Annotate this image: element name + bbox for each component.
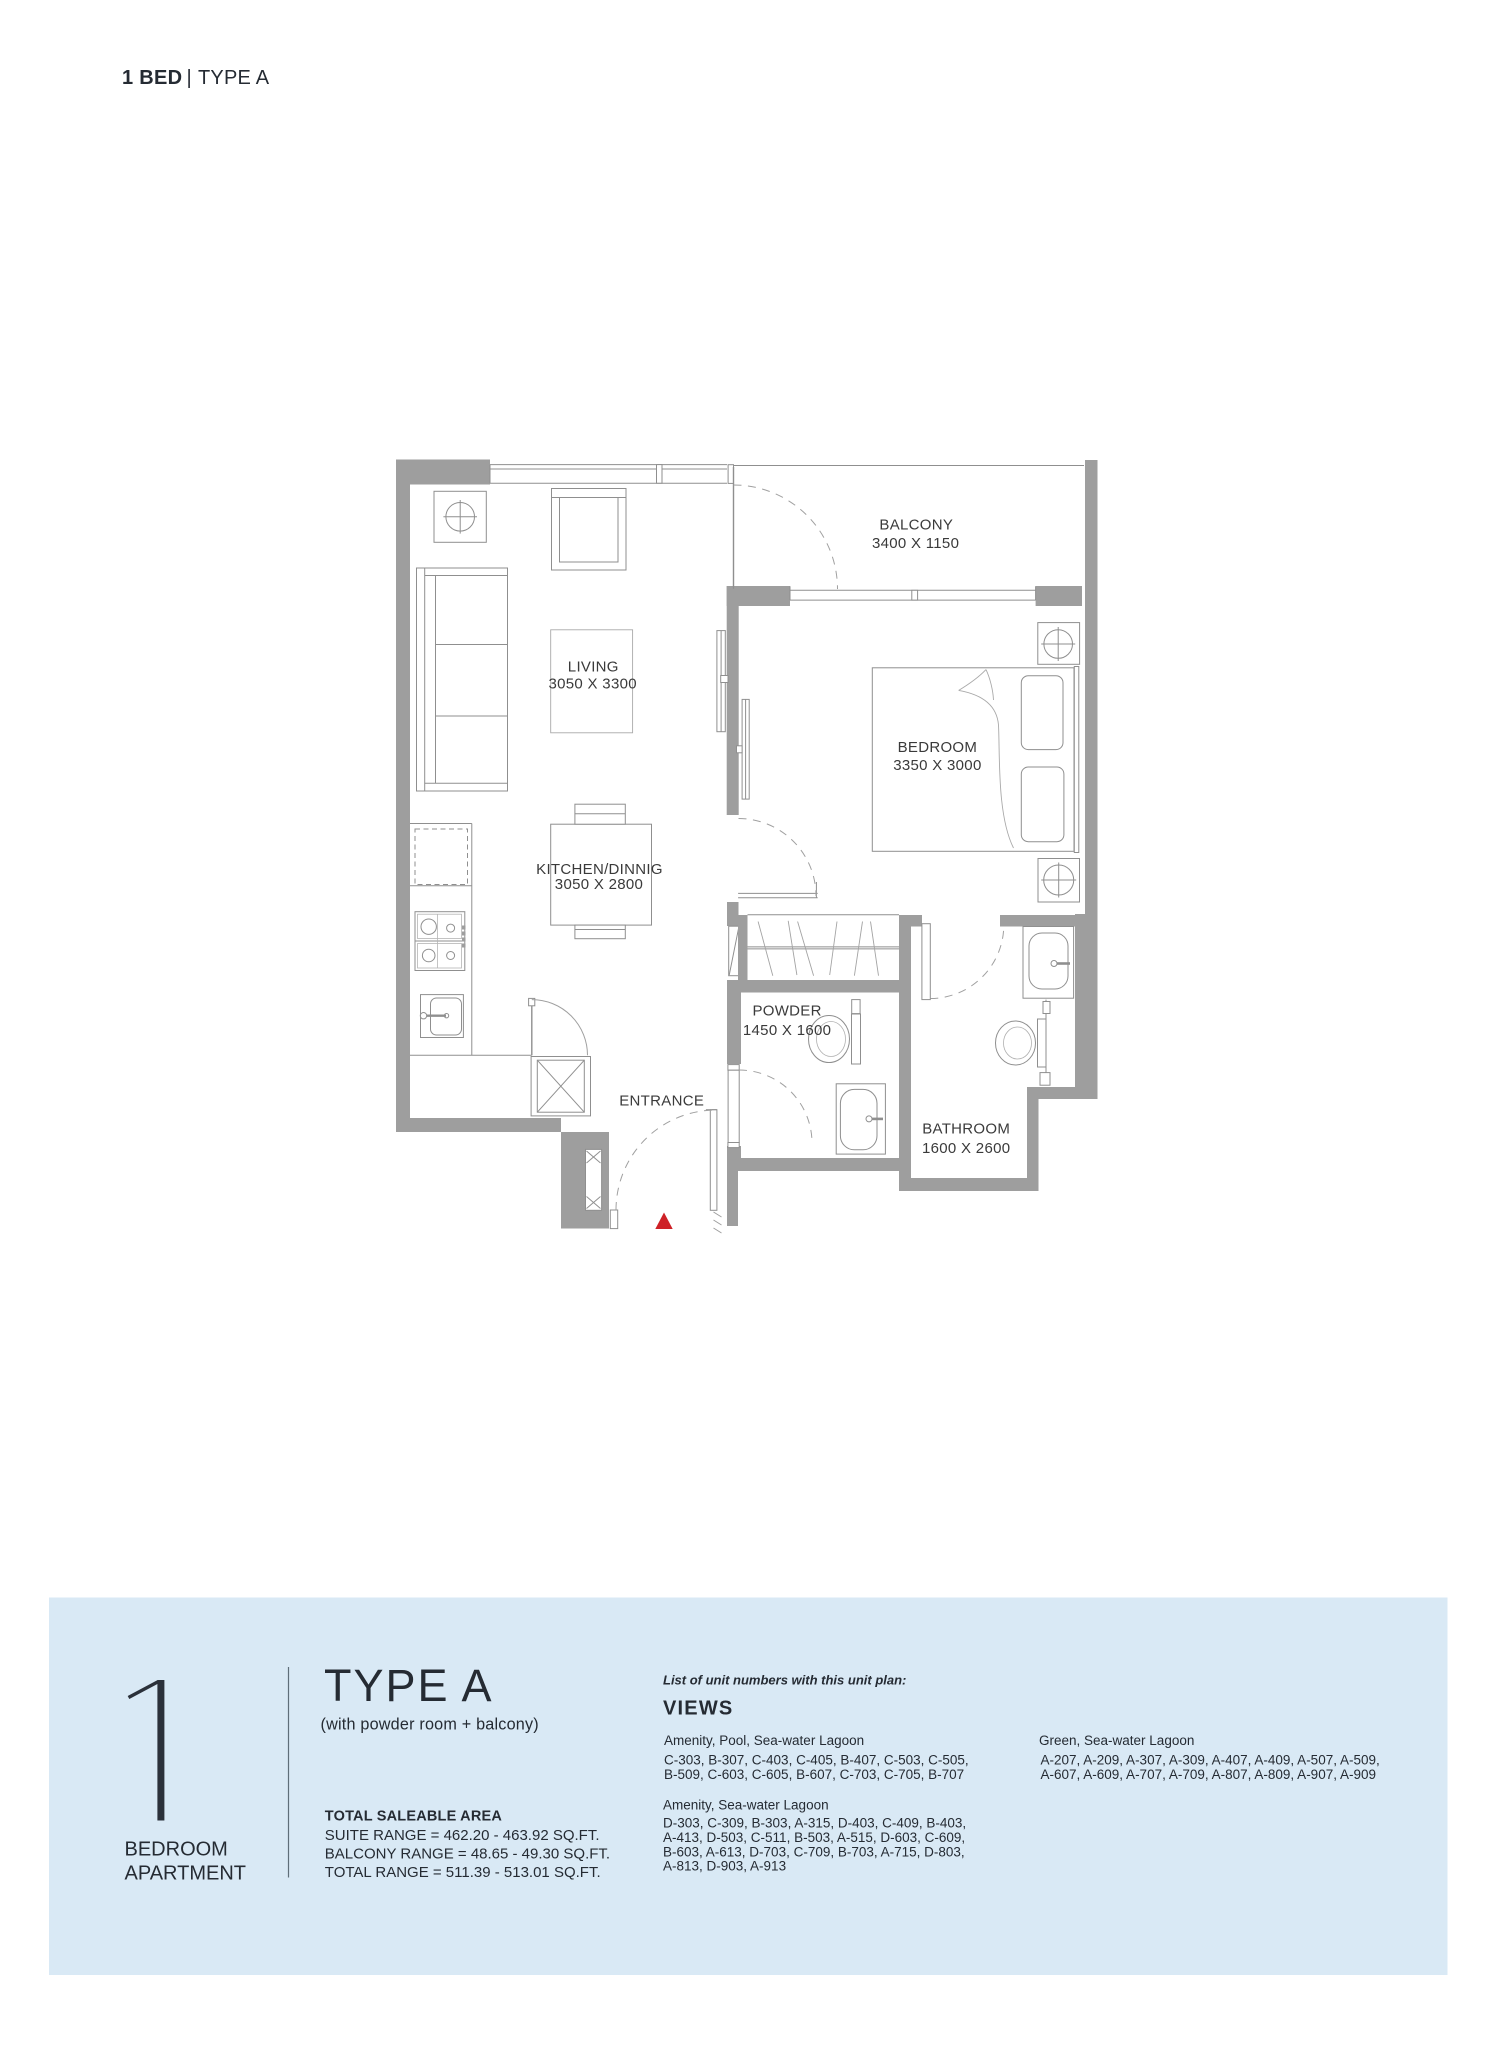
svg-text:BEDROOM: BEDROOM [125,1839,228,1861]
svg-text:A-607, A-609, A-707, A-709, A-: A-607, A-609, A-707, A-709, A-807, A-809… [1041,1767,1377,1782]
svg-text:VIEWS: VIEWS [663,1698,733,1720]
svg-text:Amenity, Pool, Sea-water Lagoo: Amenity, Pool, Sea-water Lagoon [664,1733,864,1748]
svg-text:A-207, A-209, A-307, A-309, A-: A-207, A-209, A-307, A-309, A-407, A-409… [1041,1753,1380,1768]
svg-text:BALCONY: BALCONY [879,517,953,534]
svg-text:SUITE RANGE = 462.20 - 463.92: SUITE RANGE = 462.20 - 463.92 SQ.FT. [325,1827,600,1844]
svg-text:C-303, B-307, C-403, C-405, B-: C-303, B-307, C-403, C-405, B-407, C-503… [664,1753,969,1768]
svg-text:1450 X 1600: 1450 X 1600 [743,1022,831,1039]
svg-text:TOTAL RANGE = 511.39 - 513.01: TOTAL RANGE = 511.39 - 513.01 SQ.FT. [325,1864,601,1881]
svg-text:3350 X 3000: 3350 X 3000 [893,757,981,774]
svg-text:(with powder room + balcony): (with powder room + balcony) [321,1716,539,1734]
svg-text:APARTMENT: APARTMENT [125,1863,247,1885]
svg-text:A-413, D-503, C-511, B-503, A-: A-413, D-503, C-511, B-503, A-515, D-603… [663,1830,965,1845]
svg-text:List of unit numbers with this: List of unit numbers with this unit plan… [663,1673,906,1688]
svg-text:POWDER: POWDER [752,1002,821,1019]
svg-text:TYPE A: TYPE A [324,1660,494,1711]
svg-text:BEDROOM: BEDROOM [898,739,978,756]
svg-text:BATHROOM: BATHROOM [922,1120,1010,1137]
svg-text:1600 X 2600: 1600 X 2600 [922,1140,1010,1157]
svg-text:LIVING: LIVING [568,659,619,676]
svg-text:|: | [187,67,192,89]
svg-text:3400 X 1150: 3400 X 1150 [872,535,959,552]
svg-text:ENTRANCE: ENTRANCE [619,1093,704,1110]
svg-text:TYPE A: TYPE A [198,67,270,89]
svg-text:1 BED: 1 BED [122,67,182,89]
svg-text:BALCONY RANGE = 48.65 - 49.30: BALCONY RANGE = 48.65 - 49.30 SQ.FT. [325,1846,610,1863]
svg-text:3050 X 3300: 3050 X 3300 [549,675,637,692]
svg-text:TOTAL SALEABLE AREA: TOTAL SALEABLE AREA [325,1809,503,1825]
svg-text:B-509, C-603, C-605, B-607, C-: B-509, C-603, C-605, B-607, C-703, C-705… [664,1767,964,1782]
svg-text:B-603, A-613, D-703, C-709, B-: B-603, A-613, D-703, C-709, B-703, A-715… [663,1844,965,1859]
svg-text:Amenity, Sea-water Lagoon: Amenity, Sea-water Lagoon [663,1798,829,1813]
svg-text:D-303, C-309, B-303, A-315, D-: D-303, C-309, B-303, A-315, D-403, C-409… [663,1815,966,1830]
svg-text:3050 X 2800: 3050 X 2800 [555,876,643,893]
svg-text:A-813, D-903, A-913: A-813, D-903, A-913 [663,1858,786,1873]
svg-text:Green, Sea-water Lagoon: Green, Sea-water Lagoon [1039,1733,1194,1748]
